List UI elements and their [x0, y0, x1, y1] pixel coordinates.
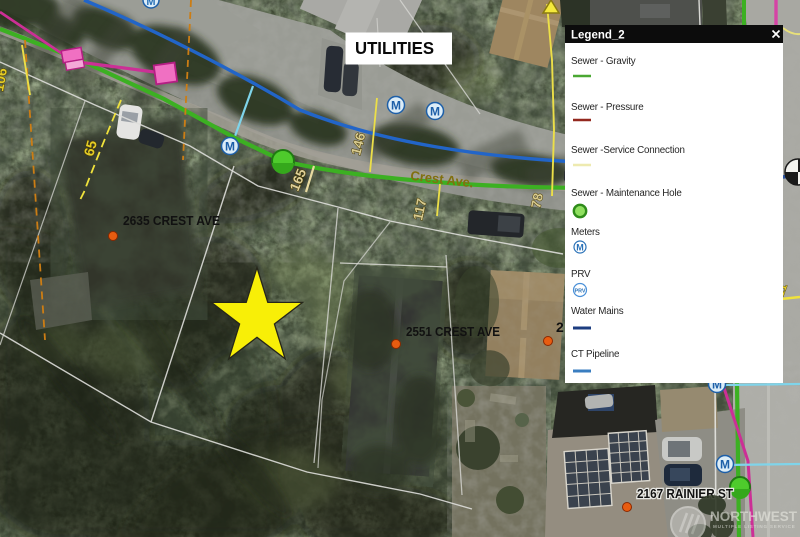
svg-text:Sewer - Maintenance Hole: Sewer - Maintenance Hole	[571, 188, 682, 199]
svg-text:CT Pipeline: CT Pipeline	[571, 349, 620, 360]
svg-text:M: M	[391, 99, 401, 113]
svg-text:M: M	[225, 140, 235, 154]
svg-text:Sewer - Gravity: Sewer - Gravity	[571, 56, 636, 67]
svg-text:PRV: PRV	[571, 269, 591, 280]
svg-text:PRV: PRV	[575, 289, 586, 295]
svg-text:UTILITIES: UTILITIES	[355, 38, 434, 58]
svg-text:Sewer -Service Connection: Sewer -Service Connection	[571, 145, 685, 156]
svg-text:M: M	[430, 105, 440, 119]
svg-text:MULTIPLE LISTING SERVICE: MULTIPLE LISTING SERVICE	[713, 524, 796, 529]
svg-text:2: 2	[556, 319, 564, 335]
svg-text:2635 CREST AVE: 2635 CREST AVE	[123, 213, 220, 228]
svg-text:M: M	[576, 243, 584, 253]
svg-text:Meters: Meters	[571, 227, 600, 238]
svg-text:2551 CREST AVE: 2551 CREST AVE	[406, 324, 500, 339]
svg-text:Sewer - Pressure: Sewer - Pressure	[571, 102, 644, 113]
svg-text:Water Mains: Water Mains	[571, 306, 624, 317]
svg-text:M: M	[720, 458, 730, 472]
svg-text:Legend_2: Legend_2	[571, 30, 625, 42]
svg-text:NORTHWEST: NORTHWEST	[710, 509, 798, 524]
svg-text:M: M	[146, 0, 155, 8]
